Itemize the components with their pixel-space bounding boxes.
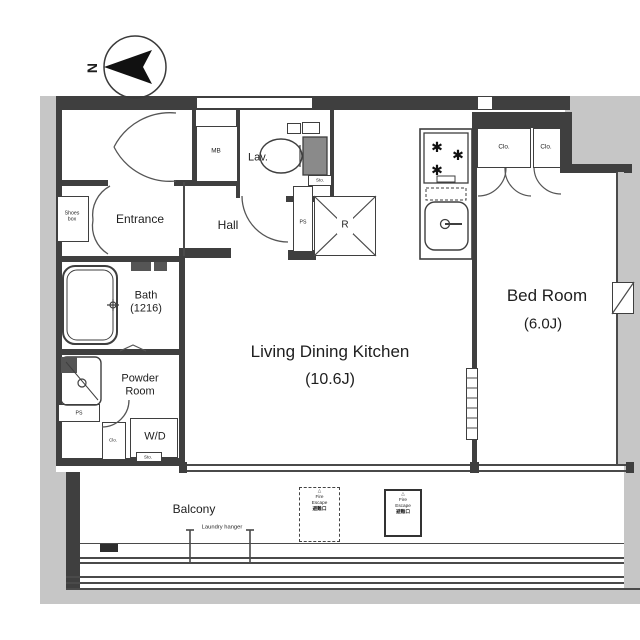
svg-text:✱: ✱ xyxy=(431,140,443,156)
bath-line1: Bath xyxy=(130,289,162,302)
ps-powder-label: PS xyxy=(76,410,83,416)
refrigerator-label: R xyxy=(341,219,348,231)
closet-left-label: Clo. xyxy=(498,143,509,150)
closet-door-swing-icons xyxy=(478,168,561,196)
bathtub-icon xyxy=(63,266,119,344)
sliding-partition-icon xyxy=(466,378,478,428)
shoes-box-line2: box xyxy=(65,216,80,222)
hall-label: Hall xyxy=(218,219,239,233)
washbasin-icon xyxy=(61,357,101,405)
north-arrow-icon xyxy=(104,36,166,98)
floor-plan: ✱ ✱ ✱ N Entrance Shoes box MB xyxy=(0,0,640,640)
laundry-hanger-posts-icon xyxy=(186,530,254,562)
powder-door-swing-icon xyxy=(102,400,129,427)
north-label: N xyxy=(84,63,100,73)
bedroom-label: Bed Room xyxy=(507,286,587,306)
fire-left-line3: 避難口 xyxy=(309,506,329,512)
fire-escape-route-text: △ Fire Escape 避難口 xyxy=(394,491,412,514)
front-door-swing-icon xyxy=(92,113,176,254)
toilet-icon xyxy=(260,137,327,175)
powder-room-label: Powder Room xyxy=(121,372,158,397)
lav-storage-label: Sto. xyxy=(316,177,324,182)
svg-text:✱: ✱ xyxy=(452,148,464,164)
balcony-label: Balcony xyxy=(173,503,216,517)
kitchen-counter-icon xyxy=(420,129,472,259)
bath-label: Bath (1216) xyxy=(130,289,162,314)
shoes-box-label: Shoes box xyxy=(65,210,80,222)
ldk-size-label: (10.6J) xyxy=(305,371,355,389)
powder-line1: Powder xyxy=(121,372,158,385)
fire-escape-route-marker: △ Fire Escape 避難口 xyxy=(384,489,422,537)
mb-label: MB xyxy=(211,147,221,154)
wd-storage-label: Sto. xyxy=(144,454,152,459)
fire-escape-hatch-marker: △ Fire Escape 避難口 xyxy=(299,487,340,542)
lav-label: Lav. xyxy=(248,152,268,165)
lav-door-swing-icon xyxy=(242,196,288,242)
fire-right-line3: 避難口 xyxy=(394,509,412,515)
bath-line2: (1216) xyxy=(130,302,162,315)
fire-left-line2: Escape xyxy=(309,500,329,506)
powder-closet-label: Clo. xyxy=(109,437,117,442)
fire-escape-hatch-text: △ Fire Escape 避難口 xyxy=(309,488,329,511)
bath-door-icon xyxy=(120,345,146,351)
closet-right-label: Clo. xyxy=(540,143,551,150)
stove-burners-icon: ✱ ✱ ✱ xyxy=(431,140,464,179)
entrance-label: Entrance xyxy=(116,213,164,227)
svg-text:✱: ✱ xyxy=(431,163,443,179)
wd-label: W/D xyxy=(144,431,165,444)
ldk-label: Living Dining Kitchen xyxy=(251,342,410,362)
powder-line2: Room xyxy=(121,385,158,398)
bedroom-size-label: (6.0J) xyxy=(524,315,562,332)
ps-hall-label: PS xyxy=(300,219,307,225)
fire-right-line2: Escape xyxy=(394,503,412,509)
bath-shelf-icon xyxy=(131,262,167,271)
ac-sleeve-icon xyxy=(612,282,634,314)
laundry-hanger-label: Laundry hanger xyxy=(202,524,243,531)
